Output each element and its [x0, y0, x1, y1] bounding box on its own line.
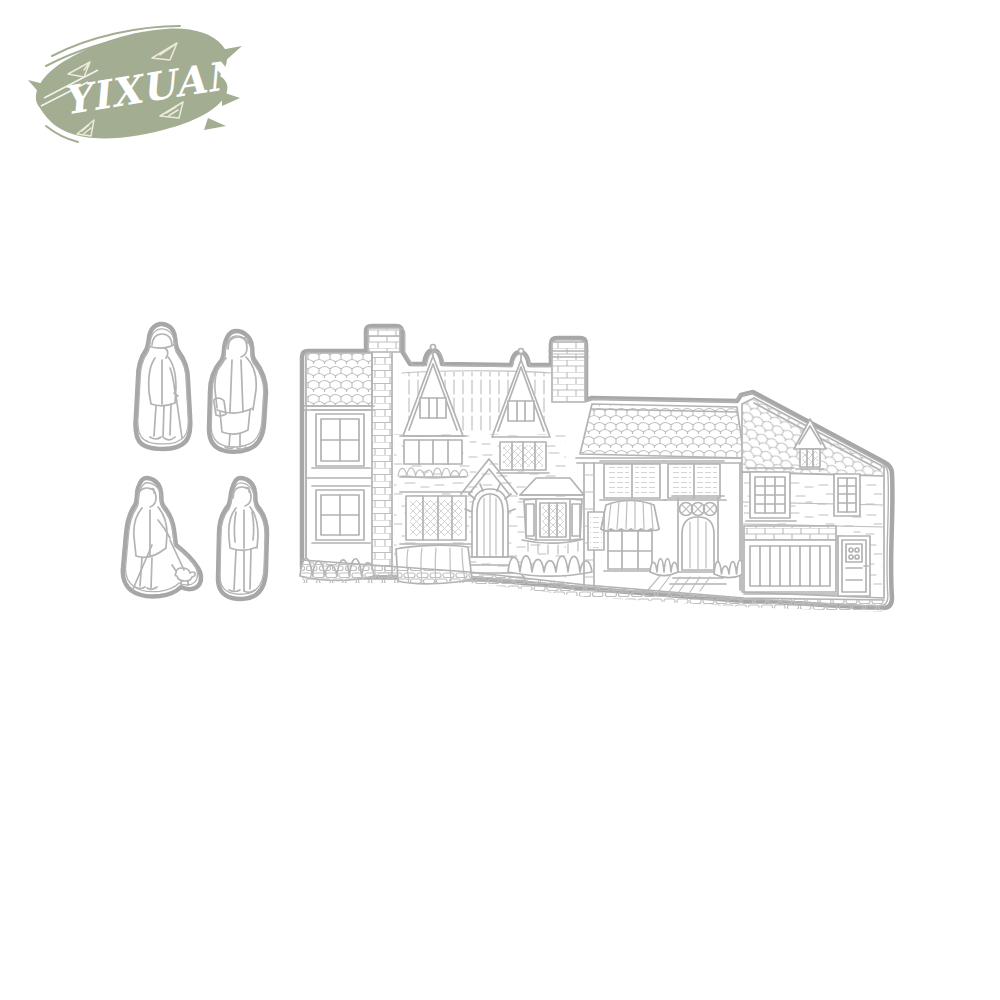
paned-window [834, 474, 860, 516]
left-house-window-lower [312, 486, 370, 543]
awning-bay [604, 531, 656, 571]
attic-window-left [420, 398, 446, 418]
figure-die-standing-man [218, 478, 267, 599]
niche-window [588, 512, 604, 550]
die-cut-product-art: YIXUAN [0, 0, 1000, 1000]
corner-quoins [372, 353, 392, 578]
product-image: YIXUAN [0, 0, 1000, 1000]
figure-die-woman-with-bag [209, 331, 266, 452]
attic-window-right [508, 401, 534, 421]
houses-die [300, 326, 892, 612]
tall-chimney [549, 342, 588, 402]
brush-spike-bottom [204, 118, 226, 130]
finial [431, 345, 436, 350]
left-house-window-upper [312, 410, 370, 468]
left-house [300, 328, 402, 581]
figure-die-man-with-cane [135, 324, 190, 449]
shuttered-window-left [600, 461, 666, 500]
shuttered-window-right [664, 461, 726, 500]
grid-window [746, 468, 796, 521]
storefront [744, 526, 838, 594]
finial [519, 349, 524, 354]
right-door [838, 536, 870, 596]
brand-logo: YIXUAN [28, 26, 251, 142]
right-house [742, 398, 884, 598]
figure-die-dog-walker [123, 478, 201, 596]
mullioned-window [400, 492, 472, 544]
leaded-window [497, 442, 549, 473]
cottage [394, 342, 592, 584]
